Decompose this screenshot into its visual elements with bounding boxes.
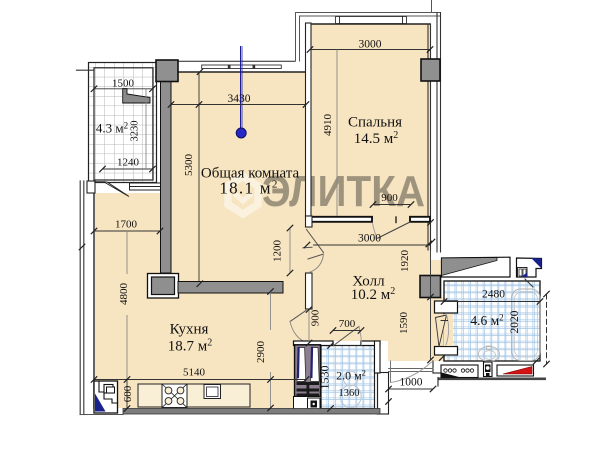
svg-text:600: 600	[122, 385, 134, 402]
svg-text:1920: 1920	[399, 250, 411, 273]
svg-text:Кухня: Кухня	[170, 322, 209, 338]
svg-text:2480: 2480	[482, 289, 505, 301]
svg-text:1000: 1000	[400, 377, 423, 389]
svg-text:700: 700	[339, 318, 356, 330]
svg-text:4910: 4910	[322, 114, 334, 137]
svg-text:1500: 1500	[112, 78, 135, 90]
svg-text:3000: 3000	[358, 233, 381, 245]
svg-text:2900: 2900	[255, 341, 267, 364]
svg-text:5140: 5140	[183, 367, 206, 379]
svg-text:1700: 1700	[115, 219, 138, 231]
svg-text:900: 900	[381, 192, 398, 204]
svg-text:1240: 1240	[117, 157, 140, 169]
svg-text:4.6 м2: 4.6 м2	[470, 313, 503, 329]
svg-text:1590: 1590	[398, 312, 410, 335]
svg-text:10.2 м2: 10.2 м2	[351, 286, 396, 303]
svg-text:3000: 3000	[359, 39, 382, 51]
svg-text:5300: 5300	[183, 154, 195, 177]
svg-text:3430: 3430	[228, 93, 251, 105]
svg-text:18.1 м2: 18.1 м2	[219, 179, 278, 198]
svg-text:900: 900	[310, 309, 322, 326]
svg-text:Спальня: Спальня	[348, 114, 402, 130]
svg-text:3230: 3230	[130, 121, 141, 142]
svg-text:1360: 1360	[339, 388, 360, 399]
svg-text:4800: 4800	[118, 283, 130, 306]
svg-text:4.3 м2: 4.3 м2	[96, 121, 128, 136]
svg-text:1530: 1530	[318, 366, 332, 390]
svg-text:14.5 м2: 14.5 м2	[354, 130, 399, 147]
svg-text:18.7 м2: 18.7 м2	[168, 338, 213, 355]
svg-text:2.0 м2: 2.0 м2	[336, 368, 366, 383]
svg-text:1200: 1200	[272, 240, 284, 263]
svg-text:2020: 2020	[509, 310, 521, 333]
